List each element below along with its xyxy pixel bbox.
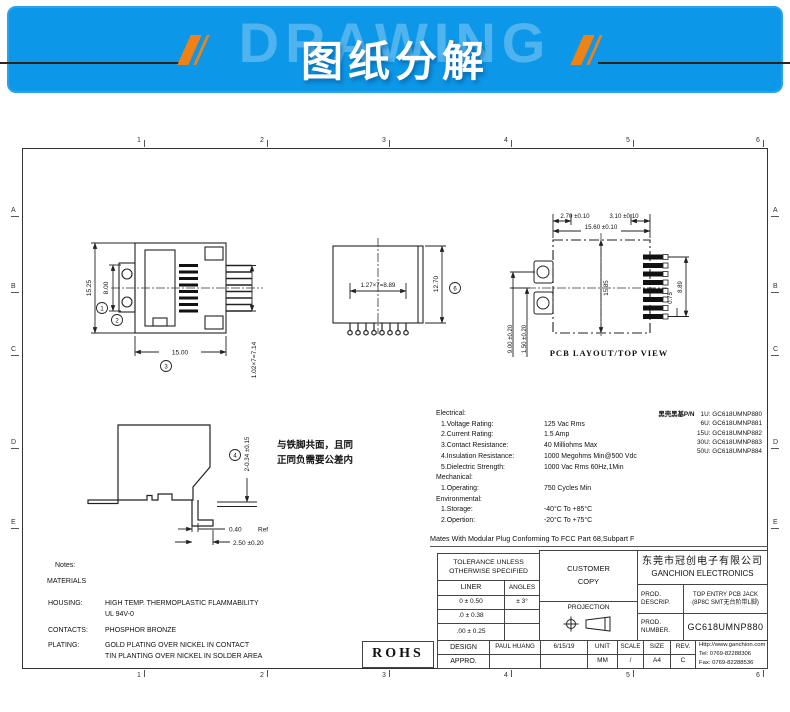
plating-value-1: GOLD PLATING OVER NICKEL IN CONTACT bbox=[105, 642, 249, 649]
descrip-line1: TOP ENTRY PCB JACK bbox=[693, 591, 758, 599]
zone-tick bbox=[267, 670, 268, 677]
scale-label: SCALE bbox=[617, 640, 644, 655]
design-date: 6/15/19 bbox=[540, 640, 588, 655]
zone-tick bbox=[11, 216, 19, 217]
page: DRAWING 图纸分解 1 2 3 4 5 6 1 2 3 4 5 6 A B… bbox=[0, 0, 790, 712]
dim-g-label: 9.00 ±0.20 bbox=[508, 324, 514, 353]
dim-h-label: 1.50 ±0.20 bbox=[522, 324, 528, 353]
spec-value: -20°C To +75°C bbox=[544, 517, 592, 524]
zone-tick bbox=[389, 670, 390, 677]
zone-col-label: 2 bbox=[260, 672, 264, 679]
tolerance-row-1-liner: 0 ± 0.50 bbox=[437, 595, 505, 610]
designer-name: PAUL HUANG bbox=[489, 640, 541, 655]
dim-b-label: 3.10 ±0.10 bbox=[609, 213, 639, 220]
side-view-dimensions bbox=[175, 478, 257, 545]
appro-name bbox=[489, 654, 541, 669]
number-label-line2: NUMBER. bbox=[641, 627, 670, 636]
design-label: DESIGN bbox=[437, 640, 490, 655]
pcb-caption: PCB LAYOUT/TOP VIEW bbox=[550, 348, 669, 358]
projection-cell: PROJECTION bbox=[539, 601, 638, 641]
descrip-line2: (8P8C SMT无台阶带L脚) bbox=[692, 599, 759, 607]
spec-row: 2.Opertion:-20°C To +75°C bbox=[436, 516, 671, 527]
side-note-line1: 与铁脚共面，且同 bbox=[277, 439, 353, 451]
dim-d-label: 15.85 bbox=[603, 280, 610, 296]
page-title: 图纸分解 bbox=[7, 28, 783, 89]
part-number-list: 黑壳黑基P/N1U: GC618UMNP880 6U: GC618UMNP881… bbox=[612, 410, 762, 456]
telephone: Tel: 0769-82288306 bbox=[699, 650, 751, 659]
prod-number-value: GC618UMNP880 bbox=[683, 613, 768, 641]
side-view-outline bbox=[88, 425, 213, 526]
pn-item: 15U: GC618UMNP882 bbox=[612, 429, 762, 438]
dim-width-label: 15.00 bbox=[172, 350, 189, 357]
contacts-label: CONTACTS: bbox=[48, 627, 88, 634]
plating-label: PLATING: bbox=[48, 642, 79, 649]
housing-value-2: UL 94V-0 bbox=[105, 611, 134, 618]
front-view-drawing: 15.25 8.00 1.02×7=7.14 15.00 1 2 3 bbox=[55, 230, 320, 398]
pn-item: 1U: GC618UMNP880 bbox=[701, 411, 762, 418]
zone-col-label: 6 bbox=[756, 672, 760, 679]
customer-copy-cell: CUSTOMER COPY bbox=[539, 550, 638, 602]
side-note-line2: 正同负需要公差内 bbox=[277, 454, 353, 466]
dim-height-label: 15.25 bbox=[86, 279, 93, 296]
appro-date bbox=[540, 654, 588, 669]
contact-cell: Http://www.ganchion.com Tel: 0769-822883… bbox=[695, 640, 768, 669]
zone-tick bbox=[511, 140, 512, 147]
zone-tick bbox=[267, 140, 268, 147]
plating-value-2: TIN PLANTING OVER NICKEL IN SOLDER AREA bbox=[105, 653, 262, 660]
tolerance-row-1-angle: ± 3° bbox=[504, 595, 540, 610]
scale-value: / bbox=[617, 654, 644, 669]
zone-col-label: 1 bbox=[137, 672, 141, 679]
spec-label: 1.Operating: bbox=[441, 484, 544, 495]
zone-tick bbox=[511, 670, 512, 677]
zone-tick bbox=[11, 528, 19, 529]
notes-heading: Notes: bbox=[55, 562, 75, 569]
dim-a-label: 2-0.34 ±0.15 bbox=[244, 436, 251, 471]
side-view-drawing: 4 2-0.34 ±0.15 0.40 Ref 2.50 ±0.20 与铁脚共面… bbox=[75, 408, 375, 553]
angles-header: ANGLES bbox=[504, 580, 540, 596]
header-banner: DRAWING 图纸分解 bbox=[7, 6, 783, 93]
dim-b-label: 0.40 bbox=[229, 527, 242, 534]
bottom-view-drawing: 1.27×7=8.89 12.70 6 bbox=[330, 235, 485, 341]
spec-label: 5.Dielectric Strength: bbox=[441, 463, 544, 474]
projection-symbol-icon bbox=[562, 616, 616, 632]
zone-tick bbox=[771, 448, 779, 449]
liner-header: LINER bbox=[437, 580, 505, 596]
rev-value: C bbox=[670, 654, 696, 669]
housing-label: HOUSING: bbox=[48, 600, 83, 607]
spec-value: -40°C To +85°C bbox=[544, 506, 592, 513]
zone-row-label: E bbox=[773, 519, 778, 526]
zone-row-label: A bbox=[11, 207, 16, 214]
spec-value: 40 Milliohms Max bbox=[544, 442, 597, 449]
spec-value: 125 Vac Rms bbox=[544, 421, 585, 428]
dim-b-ref-label: Ref bbox=[258, 527, 268, 534]
zone-tick bbox=[11, 292, 19, 293]
pcb-tabs bbox=[534, 261, 553, 314]
zone-row-label: A bbox=[773, 207, 778, 214]
pcb-pads bbox=[643, 255, 668, 320]
spec-label: 2.Opertion: bbox=[441, 516, 544, 527]
spec-section: Mechanical: bbox=[436, 473, 671, 484]
spec-label: 1.Storage: bbox=[441, 505, 544, 516]
zone-row-label: B bbox=[11, 283, 16, 290]
customer-line1: CUSTOMER bbox=[567, 563, 610, 576]
zone-tick bbox=[771, 292, 779, 293]
banner-right-line bbox=[598, 62, 790, 64]
zone-row-label: C bbox=[773, 346, 778, 353]
divider-line bbox=[430, 546, 768, 547]
zone-col-label: 1 bbox=[137, 137, 141, 144]
dim-c-label: 15.60 ±0.10 bbox=[585, 224, 618, 231]
mates-note: Mates With Modular Plug Conforming To FC… bbox=[430, 534, 634, 543]
customer-line2: COPY bbox=[578, 576, 599, 589]
zone-col-label: 3 bbox=[382, 672, 386, 679]
dim-pins-label: 1.02×7=7.14 bbox=[251, 341, 258, 378]
zone-col-label: 4 bbox=[504, 137, 508, 144]
zone-tick bbox=[633, 140, 634, 147]
spec-row: 1.Storage:-40°C To +85°C bbox=[436, 505, 671, 516]
zone-row-label: E bbox=[11, 519, 16, 526]
housing-value-1: HIGH TEMP. THERMOPLASTIC FLAMMABILITY bbox=[105, 600, 259, 607]
tolerance-row-2-liner: .0 ± 0.38 bbox=[437, 609, 505, 624]
zone-col-label: 2 bbox=[260, 137, 264, 144]
unit-label: UNIT bbox=[587, 640, 618, 655]
tolerance-row-3-liner: .00 ± 0.25 bbox=[437, 623, 505, 641]
prod-descrip-label: PROD. DESCRIP. bbox=[637, 584, 684, 614]
pn-item: 6U: GC618UMNP881 bbox=[612, 419, 762, 428]
zone-row-label: C bbox=[11, 346, 16, 353]
spec-label: 1.Voltage Rating: bbox=[441, 420, 544, 431]
zone-tick bbox=[11, 448, 19, 449]
dim-f-label: 8.89 bbox=[678, 281, 684, 293]
zone-col-label: 4 bbox=[504, 672, 508, 679]
zone-tick bbox=[763, 670, 764, 677]
spec-label: 2.Current Rating: bbox=[441, 430, 544, 441]
pn-line: 黑壳黑基P/N1U: GC618UMNP880 bbox=[612, 410, 762, 419]
dim-a-label: 2.70 ±0.10 bbox=[560, 213, 590, 220]
tolerance-row-3-angle bbox=[504, 623, 540, 641]
zone-col-label: 6 bbox=[756, 137, 760, 144]
zone-tick bbox=[771, 355, 779, 356]
spec-label: Electrical: bbox=[436, 409, 539, 420]
spec-label: Mechanical: bbox=[436, 473, 539, 484]
dim-inner-label: 8.00 bbox=[103, 281, 110, 294]
zone-tick bbox=[771, 528, 779, 529]
tolerance-line1: TOLERANCE UNLESS bbox=[453, 558, 524, 567]
materials-heading: MATERIALS bbox=[47, 578, 86, 585]
pcb-dimensions bbox=[510, 214, 689, 357]
zone-col-label: 5 bbox=[626, 672, 630, 679]
zone-col-label: 3 bbox=[382, 137, 386, 144]
spec-label: 3.Contact Resistance: bbox=[441, 441, 544, 452]
size-value: A4 bbox=[643, 654, 671, 669]
dim-e-label: 0.75 bbox=[668, 292, 674, 304]
zone-col-label: 5 bbox=[626, 137, 630, 144]
zone-tick bbox=[144, 670, 145, 677]
prod-descrip-value: TOP ENTRY PCB JACK (8P8C SMT无台阶带L脚) bbox=[683, 584, 768, 614]
tolerance-line2: OTHERWISE SPECIFIED bbox=[449, 567, 528, 576]
pn-item: 30U: GC618UMNP883 bbox=[612, 438, 762, 447]
banner-left-line bbox=[0, 62, 186, 64]
tolerance-header: TOLERANCE UNLESS OTHERWISE SPECIFIED bbox=[437, 553, 540, 581]
fax: Fax: 0769-82288536 bbox=[699, 659, 753, 668]
contacts-value: PHOSPHOR BRONZE bbox=[105, 627, 176, 634]
rev-label: REV. bbox=[670, 640, 696, 655]
pn-item: 50U: GC618UMNP884 bbox=[612, 447, 762, 456]
zone-tick bbox=[633, 670, 634, 677]
zone-tick bbox=[771, 216, 779, 217]
website: Http://www.ganchion.com bbox=[699, 641, 765, 650]
appro-label: APPRO. bbox=[437, 654, 490, 669]
spec-value: 750 Cycles Min bbox=[544, 485, 591, 492]
rohs-badge: ROHS bbox=[362, 641, 434, 668]
front-view-dimensions bbox=[91, 243, 256, 356]
dim-pitch-label: 1.27×7=8.89 bbox=[361, 282, 396, 289]
spec-row: 5.Dielectric Strength:1000 Vac Rms 60Hz,… bbox=[436, 463, 671, 474]
pcb-view-drawing: 2.70 ±0.10 3.10 ±0.10 15.60 ±0.10 15.85 … bbox=[505, 205, 767, 365]
prod-label-line1: PROD. bbox=[641, 591, 661, 600]
company-cell: 东莞市冠创电子有限公司 GANCHION ELECTRONICS bbox=[637, 550, 768, 585]
spec-value: 1.5 Amp bbox=[544, 431, 569, 438]
dim-height-label: 12.70 bbox=[433, 275, 440, 292]
prod-number-label: PROD. NUMBER. bbox=[637, 613, 684, 641]
spec-section: Environmental: bbox=[436, 495, 671, 506]
number-label-line1: PROD. bbox=[641, 619, 661, 628]
prod-label-line2: DESCRIP. bbox=[641, 599, 670, 608]
company-name-en: GANCHION ELECTRONICS bbox=[651, 569, 753, 580]
zone-tick bbox=[11, 355, 19, 356]
size-label: SIZE bbox=[643, 640, 671, 655]
zone-tick bbox=[389, 140, 390, 147]
zone-row-label: D bbox=[11, 439, 16, 446]
zone-row-label: D bbox=[773, 439, 778, 446]
spec-label: 4.Insulation Resistance: bbox=[441, 452, 544, 463]
spec-label: Environmental: bbox=[436, 495, 539, 506]
tolerance-row-2-angle bbox=[504, 609, 540, 624]
pcb-outline bbox=[553, 240, 650, 333]
projection-label: PROJECTION bbox=[568, 604, 610, 613]
unit-value: MM bbox=[587, 654, 618, 669]
zone-tick bbox=[763, 140, 764, 147]
pn-title: 黑壳黑基P/N bbox=[658, 411, 694, 418]
balloons: 1 2 3 bbox=[97, 303, 172, 372]
company-name-cn: 东莞市冠创电子有限公司 bbox=[642, 555, 763, 569]
spec-value: 1000 Vac Rms 60Hz,1Min bbox=[544, 464, 624, 471]
zone-tick bbox=[144, 140, 145, 147]
zone-row-label: B bbox=[773, 283, 778, 290]
dim-c-label: 2.50 ±0.20 bbox=[233, 540, 264, 547]
spec-row: 1.Operating:750 Cycles Min bbox=[436, 484, 671, 495]
